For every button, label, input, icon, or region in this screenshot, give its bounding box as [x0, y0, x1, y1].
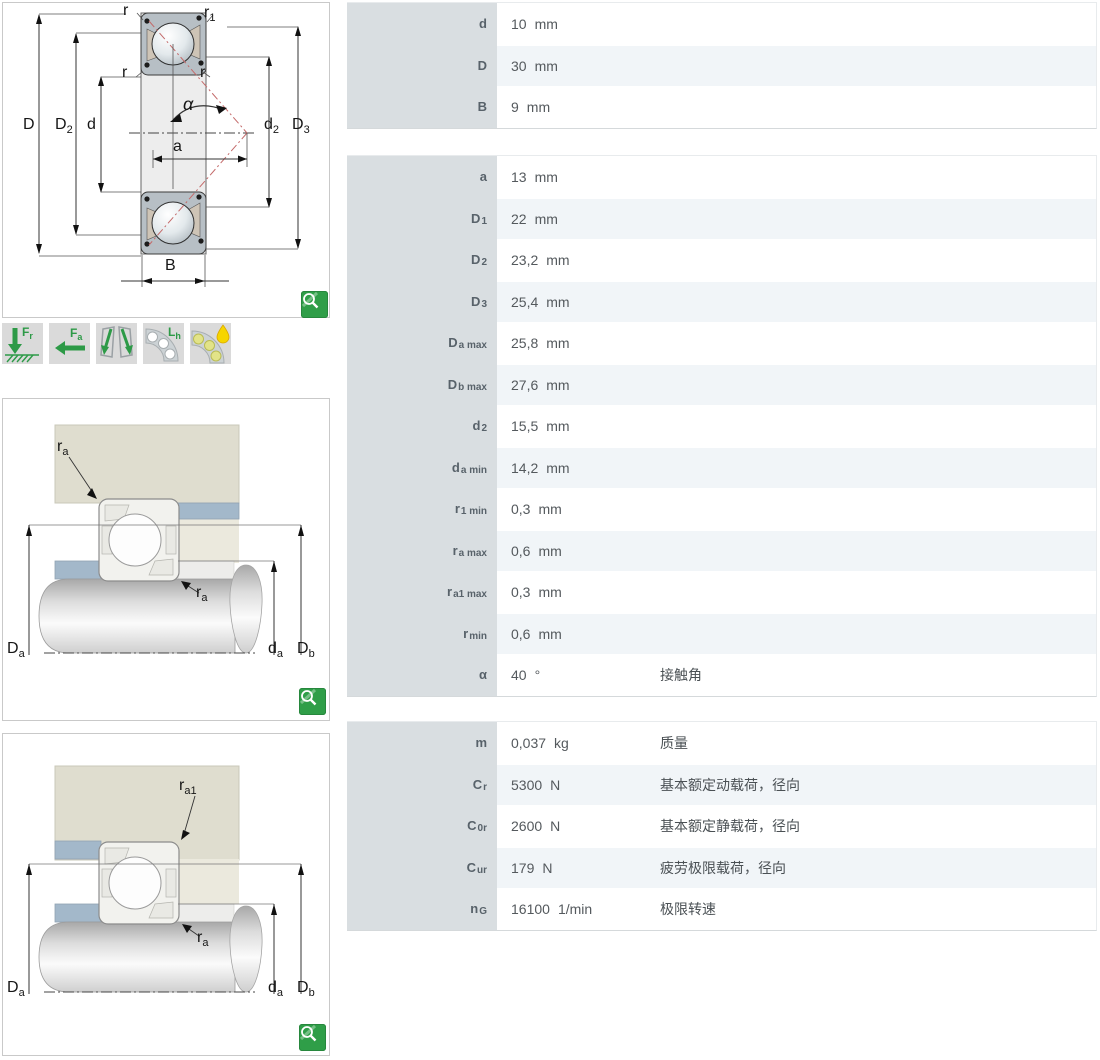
- spec-row-d2: d215,5mm: [347, 405, 1096, 447]
- dim-label-D2: D2: [55, 117, 73, 136]
- zoom-button[interactable]: [301, 291, 328, 318]
- param-description: 基本额定静载荷，径向: [660, 816, 800, 836]
- param-value-cell: 0,3mm: [497, 488, 1096, 530]
- param-value-cell: 25,4mm: [497, 281, 1096, 323]
- spec-row-C0r: C0r2600N基本额定静载荷，径向: [347, 805, 1096, 847]
- param-value-cell: 23,2mm: [497, 239, 1096, 281]
- dim-label-Db: Db: [297, 980, 315, 999]
- param-value: 0,3: [511, 501, 530, 517]
- param-unit: mm: [546, 460, 569, 476]
- param-description: 疲劳极限载荷，径向: [660, 858, 786, 878]
- spec-row-r-min: rmin0,6mm: [347, 613, 1096, 655]
- param-label: Db max: [347, 364, 497, 406]
- param-label: Cr: [347, 764, 497, 806]
- param-label: nG: [347, 888, 497, 930]
- param-label: ra max: [347, 530, 497, 572]
- dim-label-Da: Da: [7, 980, 25, 999]
- spec-row-ra1-max: ra1 max0,3mm: [347, 571, 1096, 613]
- param-unit: mm: [538, 626, 561, 642]
- param-unit: mm: [535, 58, 558, 74]
- page: { "colors": { "accent_green": "#2f9e48",…: [0, 0, 1100, 1060]
- param-unit: N: [542, 860, 552, 876]
- param-unit: mm: [527, 99, 550, 115]
- rating-life-icon[interactable]: Lh: [143, 323, 184, 364]
- param-label: D: [347, 45, 497, 87]
- shaft-fit-diagram-panel: ra1 ra Da da Db: [2, 733, 330, 1056]
- param-value-cell: 15,5mm: [497, 405, 1096, 447]
- spec-row-alpha: α40°接触角: [347, 654, 1096, 696]
- param-unit: N: [550, 818, 560, 834]
- spec-row-Da-max: Da max25,8mm: [347, 322, 1096, 364]
- param-value: 27,6: [511, 377, 538, 393]
- param-value-cell: 10mm: [497, 3, 1096, 45]
- dim-label-ra-shaft: ra: [196, 585, 207, 604]
- section-diagram-panel: r r1 r r α a d D2 D d2 D3 B: [2, 2, 330, 318]
- param-value: 14,2: [511, 460, 538, 476]
- param-value-cell: 179N疲劳极限载荷，径向: [497, 847, 1096, 889]
- housing-fit-diagram-panel: ra ra Da da Db: [2, 398, 330, 721]
- param-label: C0r: [347, 805, 497, 847]
- param-value-cell: 161001/min极限转速: [497, 888, 1096, 930]
- param-label: D1: [347, 198, 497, 240]
- param-description: 基本额定动载荷，径向: [660, 775, 800, 795]
- spec-row-D: D30mm: [347, 45, 1096, 87]
- dim-label-r1: r1: [204, 5, 215, 24]
- spec-row-da-min: da min14,2mm: [347, 447, 1096, 489]
- param-value: 25,4: [511, 294, 538, 310]
- spec-row-Cur: Cur179N疲劳极限载荷，径向: [347, 847, 1096, 889]
- param-unit: mm: [546, 418, 569, 434]
- magnifier-icon: [301, 291, 320, 310]
- zoom-button[interactable]: [299, 688, 326, 715]
- param-value-cell: 0,3mm: [497, 571, 1096, 613]
- spec-row-D3: D325,4mm: [347, 281, 1096, 323]
- param-label: m: [347, 722, 497, 764]
- param-label: ra1 max: [347, 571, 497, 613]
- spec-row-D2: D223,2mm: [347, 239, 1096, 281]
- spec-row-Db-max: Db max27,6mm: [347, 364, 1096, 406]
- param-unit: mm: [546, 294, 569, 310]
- param-value: 0,037: [511, 735, 546, 751]
- param-value-cell: 5300N基本额定动载荷，径向: [497, 764, 1096, 806]
- param-unit: mm: [538, 501, 561, 517]
- param-unit: mm: [535, 211, 558, 227]
- dim-label-D: D: [23, 117, 35, 133]
- param-unit: °: [535, 667, 541, 683]
- dim-label-B: B: [165, 258, 176, 274]
- dim-label-Db: Db: [297, 641, 315, 660]
- param-value-cell: 0,037kg质量: [497, 722, 1096, 764]
- param-unit: mm: [535, 169, 558, 185]
- param-value-cell: 30mm: [497, 45, 1096, 87]
- dim-label-Da: Da: [7, 641, 25, 660]
- param-label: d: [347, 3, 497, 45]
- mounting-drawing-2: [3, 734, 329, 1055]
- dim-label-r: r: [123, 3, 128, 19]
- dim-label-ra-housing: ra: [57, 439, 68, 458]
- zoom-button[interactable]: [299, 1024, 326, 1051]
- param-value: 22: [511, 211, 527, 227]
- param-value-cell: 2600N基本额定静载荷，径向: [497, 805, 1096, 847]
- dim-label-da: da: [268, 980, 283, 999]
- param-label: B: [347, 86, 497, 128]
- dim-label-a: a: [173, 139, 182, 155]
- dim-label-alpha: α: [183, 95, 193, 113]
- param-unit: mm: [546, 377, 569, 393]
- mounting-drawing-1: [3, 399, 329, 720]
- param-unit: mm: [546, 335, 569, 351]
- param-value-cell: 40°接触角: [497, 654, 1096, 696]
- param-value: 15,5: [511, 418, 538, 434]
- feature-icon-strip: Fr Fa Lh: [2, 323, 231, 364]
- param-value: 0,6: [511, 543, 530, 559]
- param-label: Cur: [347, 847, 497, 889]
- param-label: r1 min: [347, 488, 497, 530]
- spec-table-abutment-dimensions: a13mmD122mmD223,2mmD325,4mmDa max25,8mmD…: [347, 155, 1097, 697]
- spec-row-ra-max: ra max0,6mm: [347, 530, 1096, 572]
- param-value-cell: 13mm: [497, 156, 1096, 198]
- param-label: D2: [347, 239, 497, 281]
- param-unit: mm: [546, 252, 569, 268]
- param-value-cell: 25,8mm: [497, 322, 1096, 364]
- param-value: 25,8: [511, 335, 538, 351]
- param-label: α: [347, 654, 497, 696]
- param-label: D3: [347, 281, 497, 323]
- param-value: 0,6: [511, 626, 530, 642]
- param-value-cell: 0,6mm: [497, 530, 1096, 572]
- radial-load-icon[interactable]: Fr: [2, 323, 43, 364]
- spec-table-performance: m0,037kg质量Cr5300N基本额定动载荷，径向C0r2600N基本额定静…: [347, 721, 1097, 931]
- param-value: 16100: [511, 901, 550, 917]
- spec-row-d: d10mm: [347, 3, 1096, 45]
- magnifier-icon: [299, 688, 318, 707]
- param-value-cell: 9mm: [497, 86, 1096, 128]
- dim-label-r-mid-right: r: [200, 65, 205, 81]
- param-value: 2600: [511, 818, 542, 834]
- param-value: 179: [511, 860, 534, 876]
- param-description: 接触角: [660, 665, 702, 685]
- lubrication-icon[interactable]: [190, 323, 231, 364]
- dim-label-d2: d2: [264, 117, 279, 136]
- param-unit: 1/min: [558, 901, 592, 917]
- dim-label-ra-shaft: ra: [197, 930, 208, 949]
- misalignment-icon[interactable]: [96, 323, 137, 364]
- param-unit: mm: [535, 16, 558, 32]
- spec-row-D1: D122mm: [347, 198, 1096, 240]
- spec-row-nG: nG161001/min极限转速: [347, 888, 1096, 930]
- param-value-cell: 22mm: [497, 198, 1096, 240]
- param-description: 质量: [660, 733, 688, 753]
- param-unit: mm: [538, 543, 561, 559]
- param-label: da min: [347, 447, 497, 489]
- param-value-cell: 27,6mm: [497, 364, 1096, 406]
- param-label: rmin: [347, 613, 497, 655]
- param-value: 23,2: [511, 252, 538, 268]
- param-value: 0,3: [511, 584, 530, 600]
- param-unit: mm: [538, 584, 561, 600]
- spec-row-r1-min: r1 min0,3mm: [347, 488, 1096, 530]
- param-value: 13: [511, 169, 527, 185]
- spec-table-main-dimensions: d10mmD30mmB9mm: [347, 2, 1097, 129]
- param-value-cell: 0,6mm: [497, 613, 1096, 655]
- param-label: Da max: [347, 322, 497, 364]
- param-value: 5300: [511, 777, 542, 793]
- param-unit: kg: [554, 735, 569, 751]
- dim-label-d: d: [87, 117, 96, 133]
- spec-row-m: m0,037kg质量: [347, 722, 1096, 764]
- param-value-cell: 14,2mm: [497, 447, 1096, 489]
- param-value: 40: [511, 667, 527, 683]
- spec-row-a: a13mm: [347, 156, 1096, 198]
- dim-label-ra1: ra1: [179, 778, 197, 797]
- spec-row-B: B9mm: [347, 86, 1096, 128]
- spec-row-Cr: Cr5300N基本额定动载荷，径向: [347, 764, 1096, 806]
- dim-label-D3: D3: [292, 117, 310, 136]
- magnifier-icon: [299, 1024, 318, 1043]
- dim-label-da: da: [268, 641, 283, 660]
- param-value: 9: [511, 99, 519, 115]
- param-value: 30: [511, 58, 527, 74]
- param-value: 10: [511, 16, 527, 32]
- param-label: a: [347, 156, 497, 198]
- param-unit: N: [550, 777, 560, 793]
- dim-label-r-mid-left: r: [122, 65, 127, 81]
- param-label: d2: [347, 405, 497, 447]
- param-description: 极限转速: [660, 899, 716, 919]
- axial-load-icon[interactable]: Fa: [49, 323, 90, 364]
